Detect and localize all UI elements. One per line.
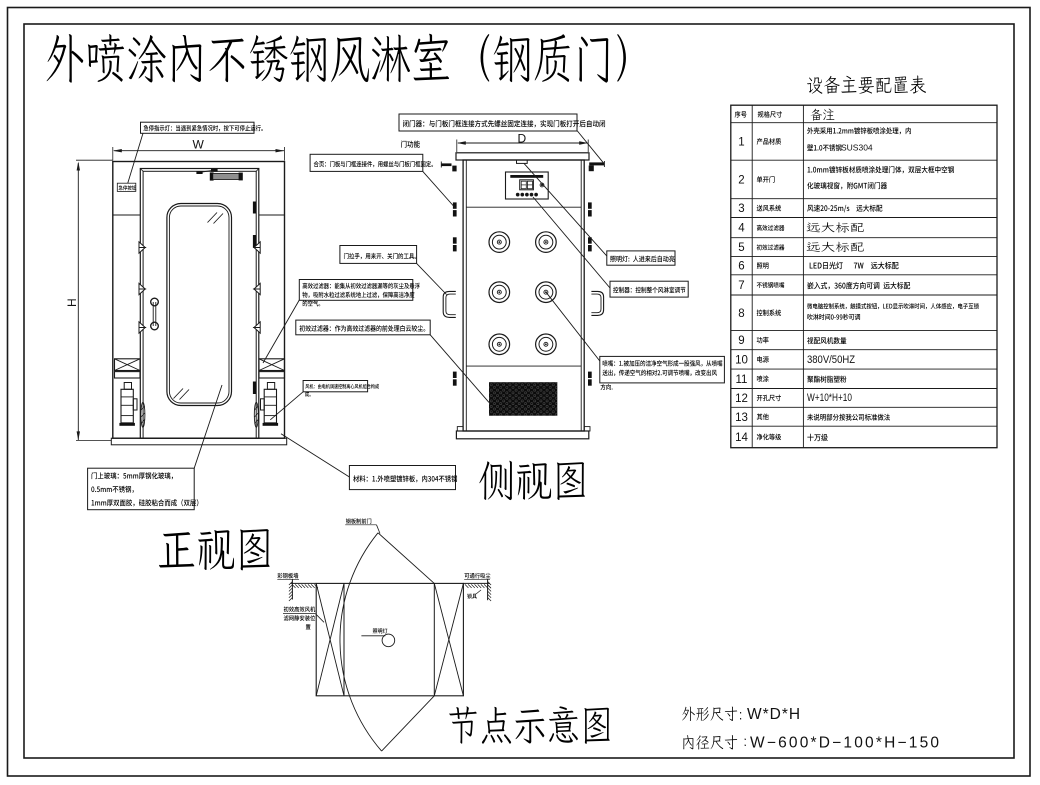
svg-text:13: 13 [735, 412, 748, 424]
svg-text:H: H [65, 298, 79, 307]
svg-text:SUS304: SUS304 [841, 143, 873, 153]
svg-text:6: 6 [738, 261, 744, 273]
svg-text:2: 2 [738, 174, 744, 186]
svg-text:W*D*H: W*D*H [747, 706, 801, 723]
svg-text:5: 5 [738, 242, 744, 254]
svg-text:10: 10 [735, 354, 748, 366]
svg-text:11: 11 [736, 374, 748, 386]
svg-text:12: 12 [735, 393, 748, 405]
svg-text:14: 14 [735, 432, 748, 444]
svg-text:W+10*H+10: W+10*H+10 [807, 392, 852, 404]
svg-text:8: 8 [738, 308, 744, 320]
svg-text:W−600*D−100*H−150: W−600*D−100*H−150 [750, 735, 941, 752]
svg-text:7: 7 [738, 280, 744, 292]
svg-text:9: 9 [738, 335, 744, 347]
svg-text:D: D [518, 132, 527, 146]
svg-text:W: W [193, 138, 205, 152]
svg-text:4: 4 [738, 223, 745, 235]
svg-text:380V/50HZ: 380V/50HZ [807, 354, 855, 366]
svg-text:3: 3 [738, 203, 744, 215]
svg-text:1: 1 [738, 136, 744, 148]
